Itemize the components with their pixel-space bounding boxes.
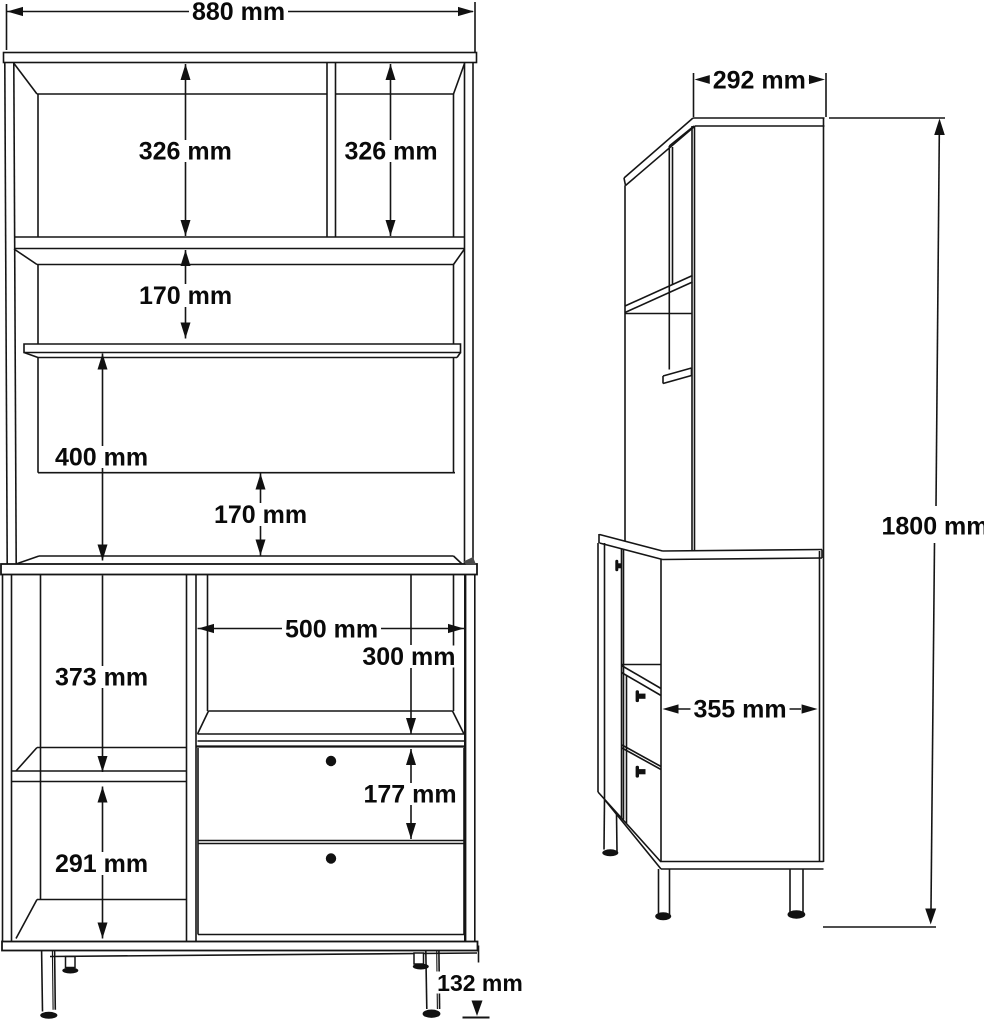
svg-text:291 mm: 291 mm [55,850,148,878]
svg-text:170 mm: 170 mm [214,501,307,529]
svg-text:300 mm: 300 mm [362,643,455,671]
svg-text:132 mm: 132 mm [437,970,523,996]
svg-text:400 mm: 400 mm [55,444,148,472]
svg-text:500 mm: 500 mm [285,616,378,644]
svg-text:326 mm: 326 mm [139,138,232,166]
svg-text:177 mm: 177 mm [363,781,456,809]
svg-text:292 mm: 292 mm [713,67,806,95]
svg-text:326 mm: 326 mm [344,138,437,166]
svg-text:170 mm: 170 mm [139,282,232,310]
svg-text:1800 mm: 1800 mm [881,513,984,541]
svg-text:355 mm: 355 mm [693,696,786,724]
svg-text:880 mm: 880 mm [192,0,285,26]
svg-text:373 mm: 373 mm [55,664,148,692]
